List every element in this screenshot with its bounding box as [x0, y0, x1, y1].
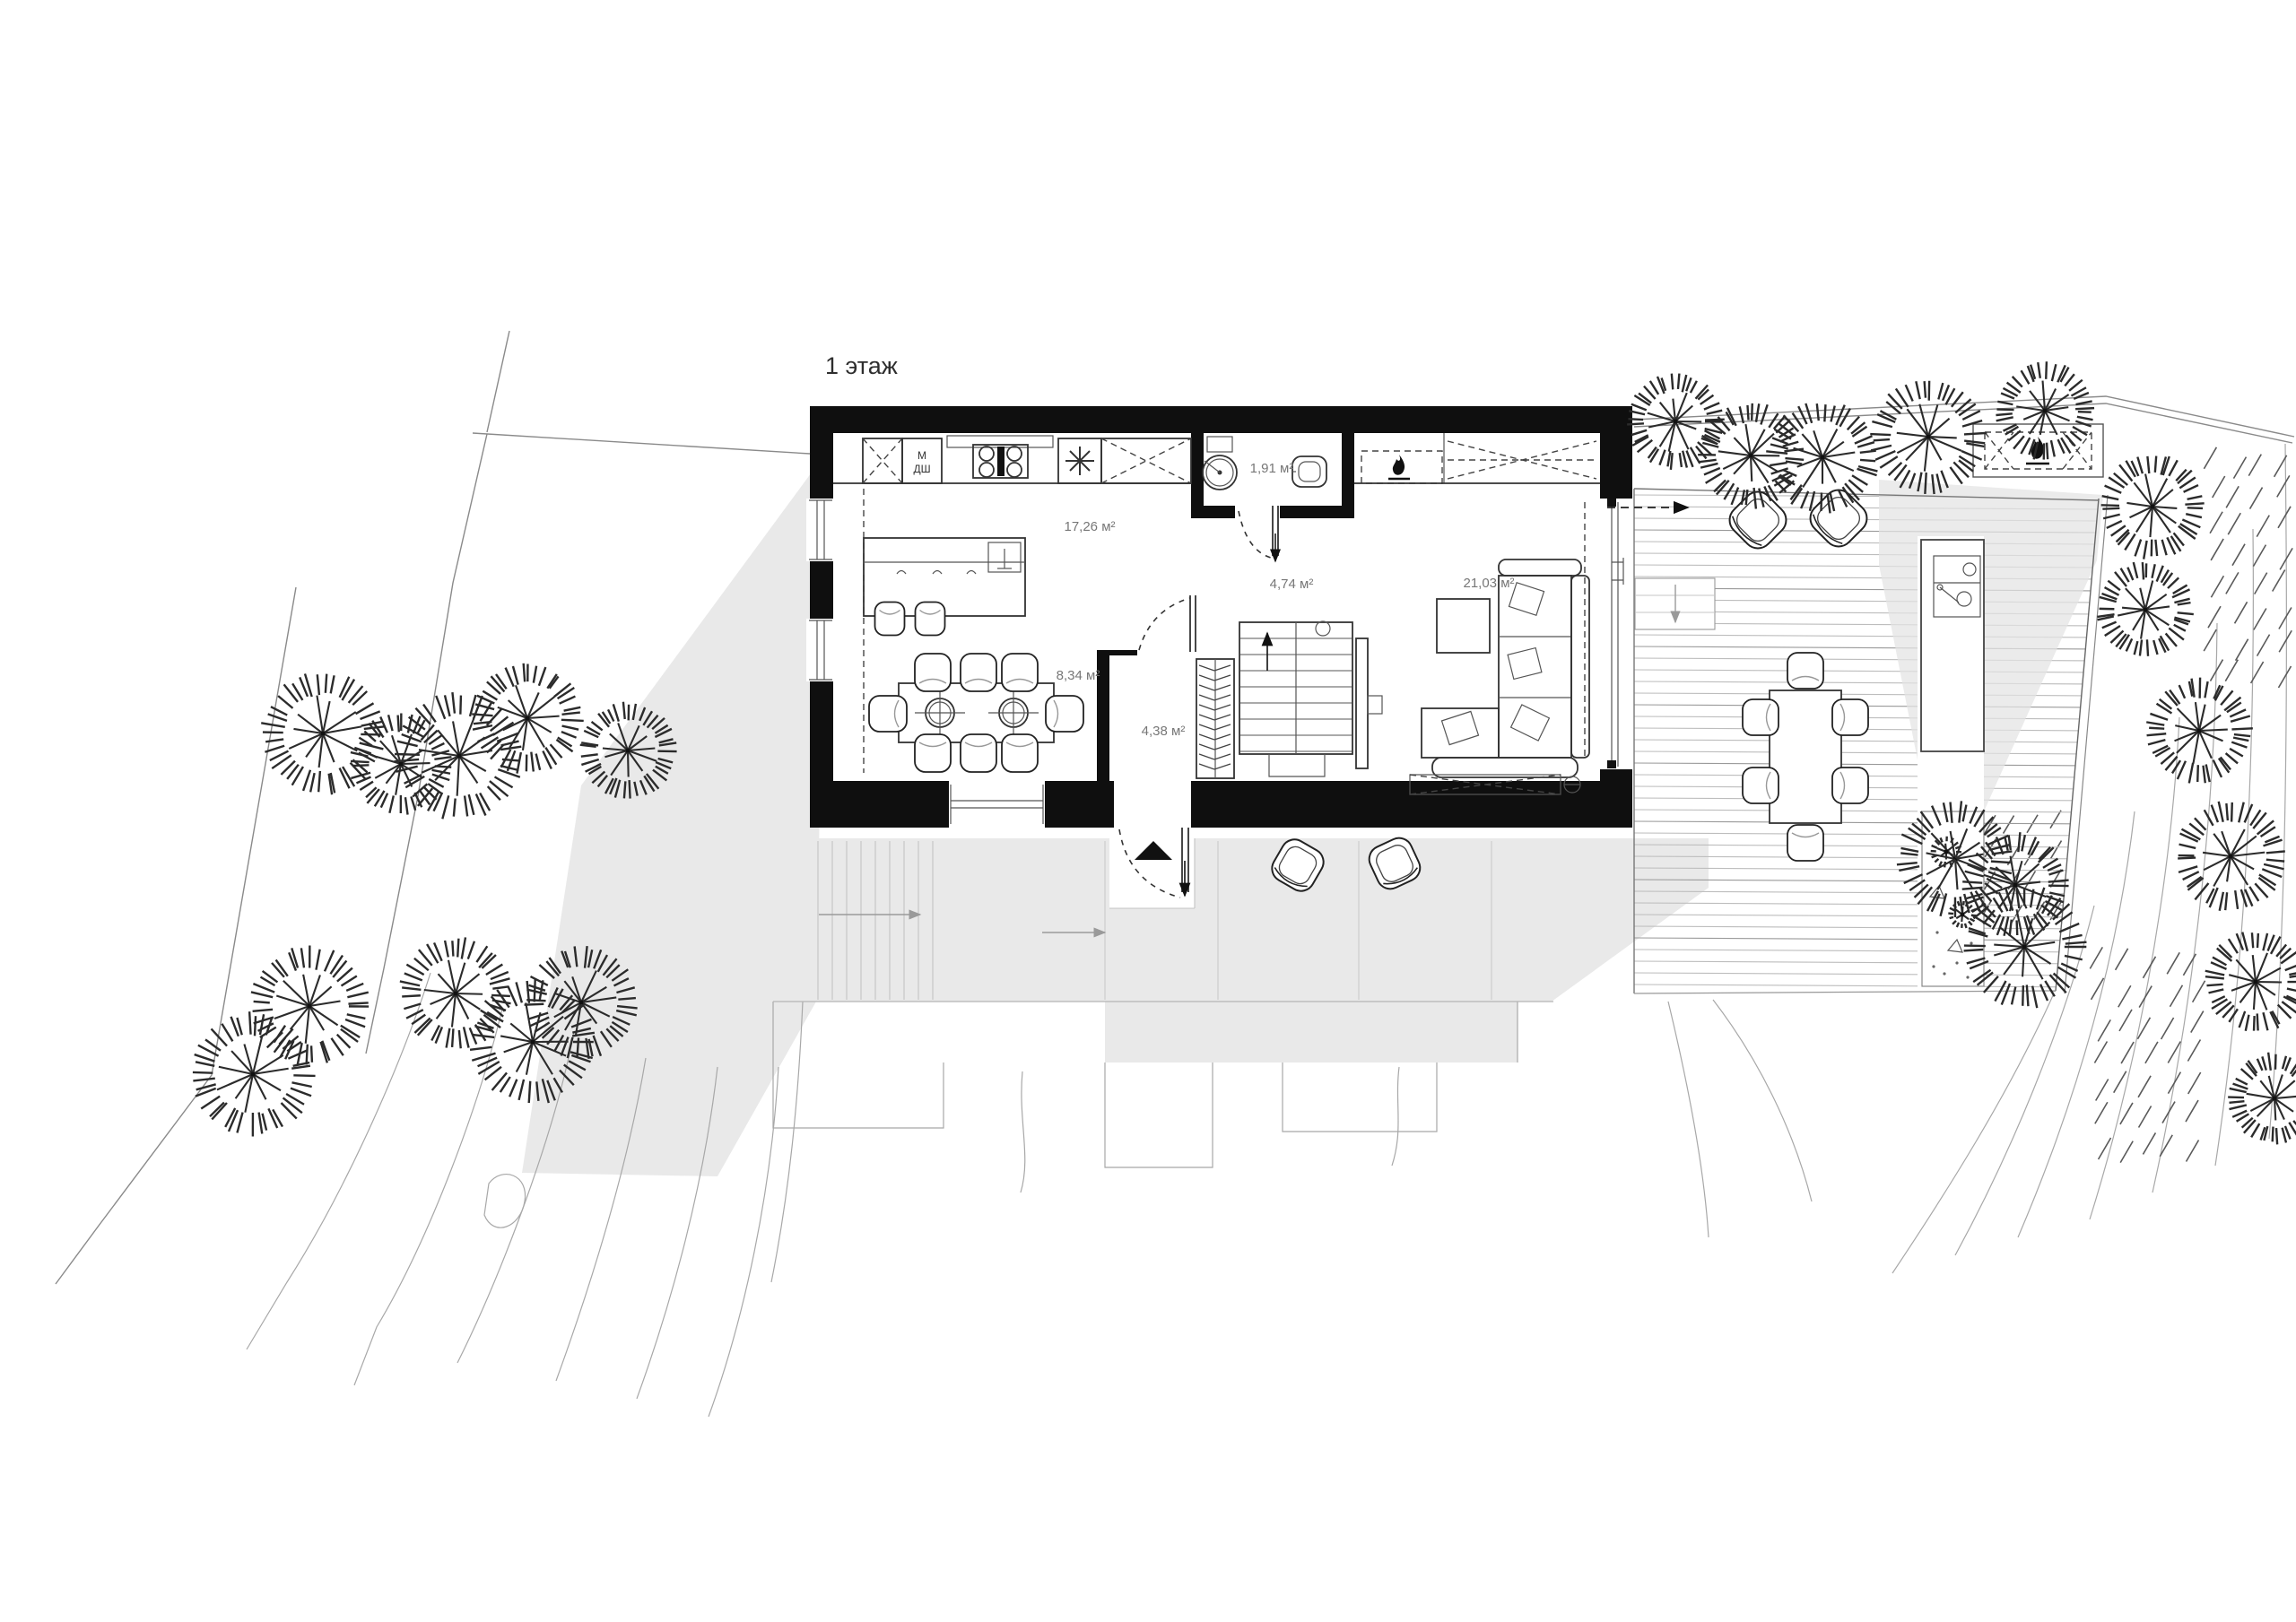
floor-plan-drawing: 1 этаж 17,26 м² 1,91 м² 4,74 м² 21,03 м²…	[0, 0, 2296, 1622]
room-label-dining: 8,34 м²	[1057, 668, 1100, 683]
room-label-entry: 4,38 м²	[1142, 724, 1186, 739]
tree-icon	[2228, 1053, 2296, 1145]
tree-icon	[193, 1011, 316, 1136]
window-west-2	[806, 619, 837, 681]
tree-icon	[251, 946, 369, 1065]
tree-icon	[400, 937, 511, 1048]
deck-shadow	[1879, 480, 2103, 811]
tree-icon	[261, 673, 385, 794]
outdoor-chair	[1743, 699, 1779, 735]
floor-plan-page: 1 этаж 17,26 м² 1,91 м² 4,74 м² 21,03 м²…	[0, 0, 2296, 1622]
room-label-kitchen: 17,26 м²	[1064, 519, 1115, 534]
tree-icon	[472, 664, 584, 774]
wall-west	[810, 406, 833, 828]
room-label-hall: 4,74 м²	[1270, 577, 1314, 592]
dining-chair	[961, 734, 996, 772]
dining-chair	[961, 654, 996, 691]
outdoor-chair	[1787, 825, 1823, 861]
site-boundary-north-east	[1634, 396, 2294, 437]
road-edge-west	[56, 587, 296, 1284]
dining-chair	[1002, 734, 1038, 772]
tree-icon	[2178, 802, 2285, 911]
outdoor-furniture	[1770, 690, 1841, 823]
house	[806, 406, 1688, 898]
dining-chair	[915, 654, 951, 691]
dining-chair	[1046, 696, 1083, 732]
deck-steps	[1635, 578, 1715, 629]
tree-icon	[1870, 381, 1987, 494]
site-boundary-north	[473, 433, 810, 454]
washer-label: М	[918, 449, 926, 462]
bar-stool	[875, 603, 905, 636]
patio-shadow	[773, 838, 1709, 1063]
wall-north	[810, 406, 1632, 433]
dining-chair	[869, 696, 907, 732]
site-boundary-north-west	[487, 331, 509, 432]
page-title: 1 этаж	[825, 352, 898, 379]
bar-stool	[916, 603, 945, 636]
tree-icon	[2101, 456, 2205, 559]
outdoor-kitchen-island	[1921, 540, 1984, 751]
outdoor-chair	[1832, 699, 1868, 735]
dining-chair	[1002, 654, 1038, 691]
site-boundary-west	[366, 434, 487, 1054]
room-label-living: 21,03 м²	[1463, 576, 1514, 591]
dining-chair	[915, 734, 951, 772]
window-south	[949, 781, 1045, 828]
outdoor-chair	[1832, 768, 1868, 803]
room-label-bathroom: 1,91 м²	[1250, 461, 1294, 476]
tree-icon	[2146, 678, 2253, 784]
outdoor-chair	[1743, 768, 1779, 803]
tree-icon	[2205, 932, 2296, 1031]
dishwasher-label: ДШ	[913, 463, 930, 475]
window-west-1	[806, 499, 837, 561]
outdoor-dining-table	[1770, 690, 1841, 823]
tree-icon	[2097, 562, 2193, 656]
outdoor-chair	[1787, 653, 1823, 689]
